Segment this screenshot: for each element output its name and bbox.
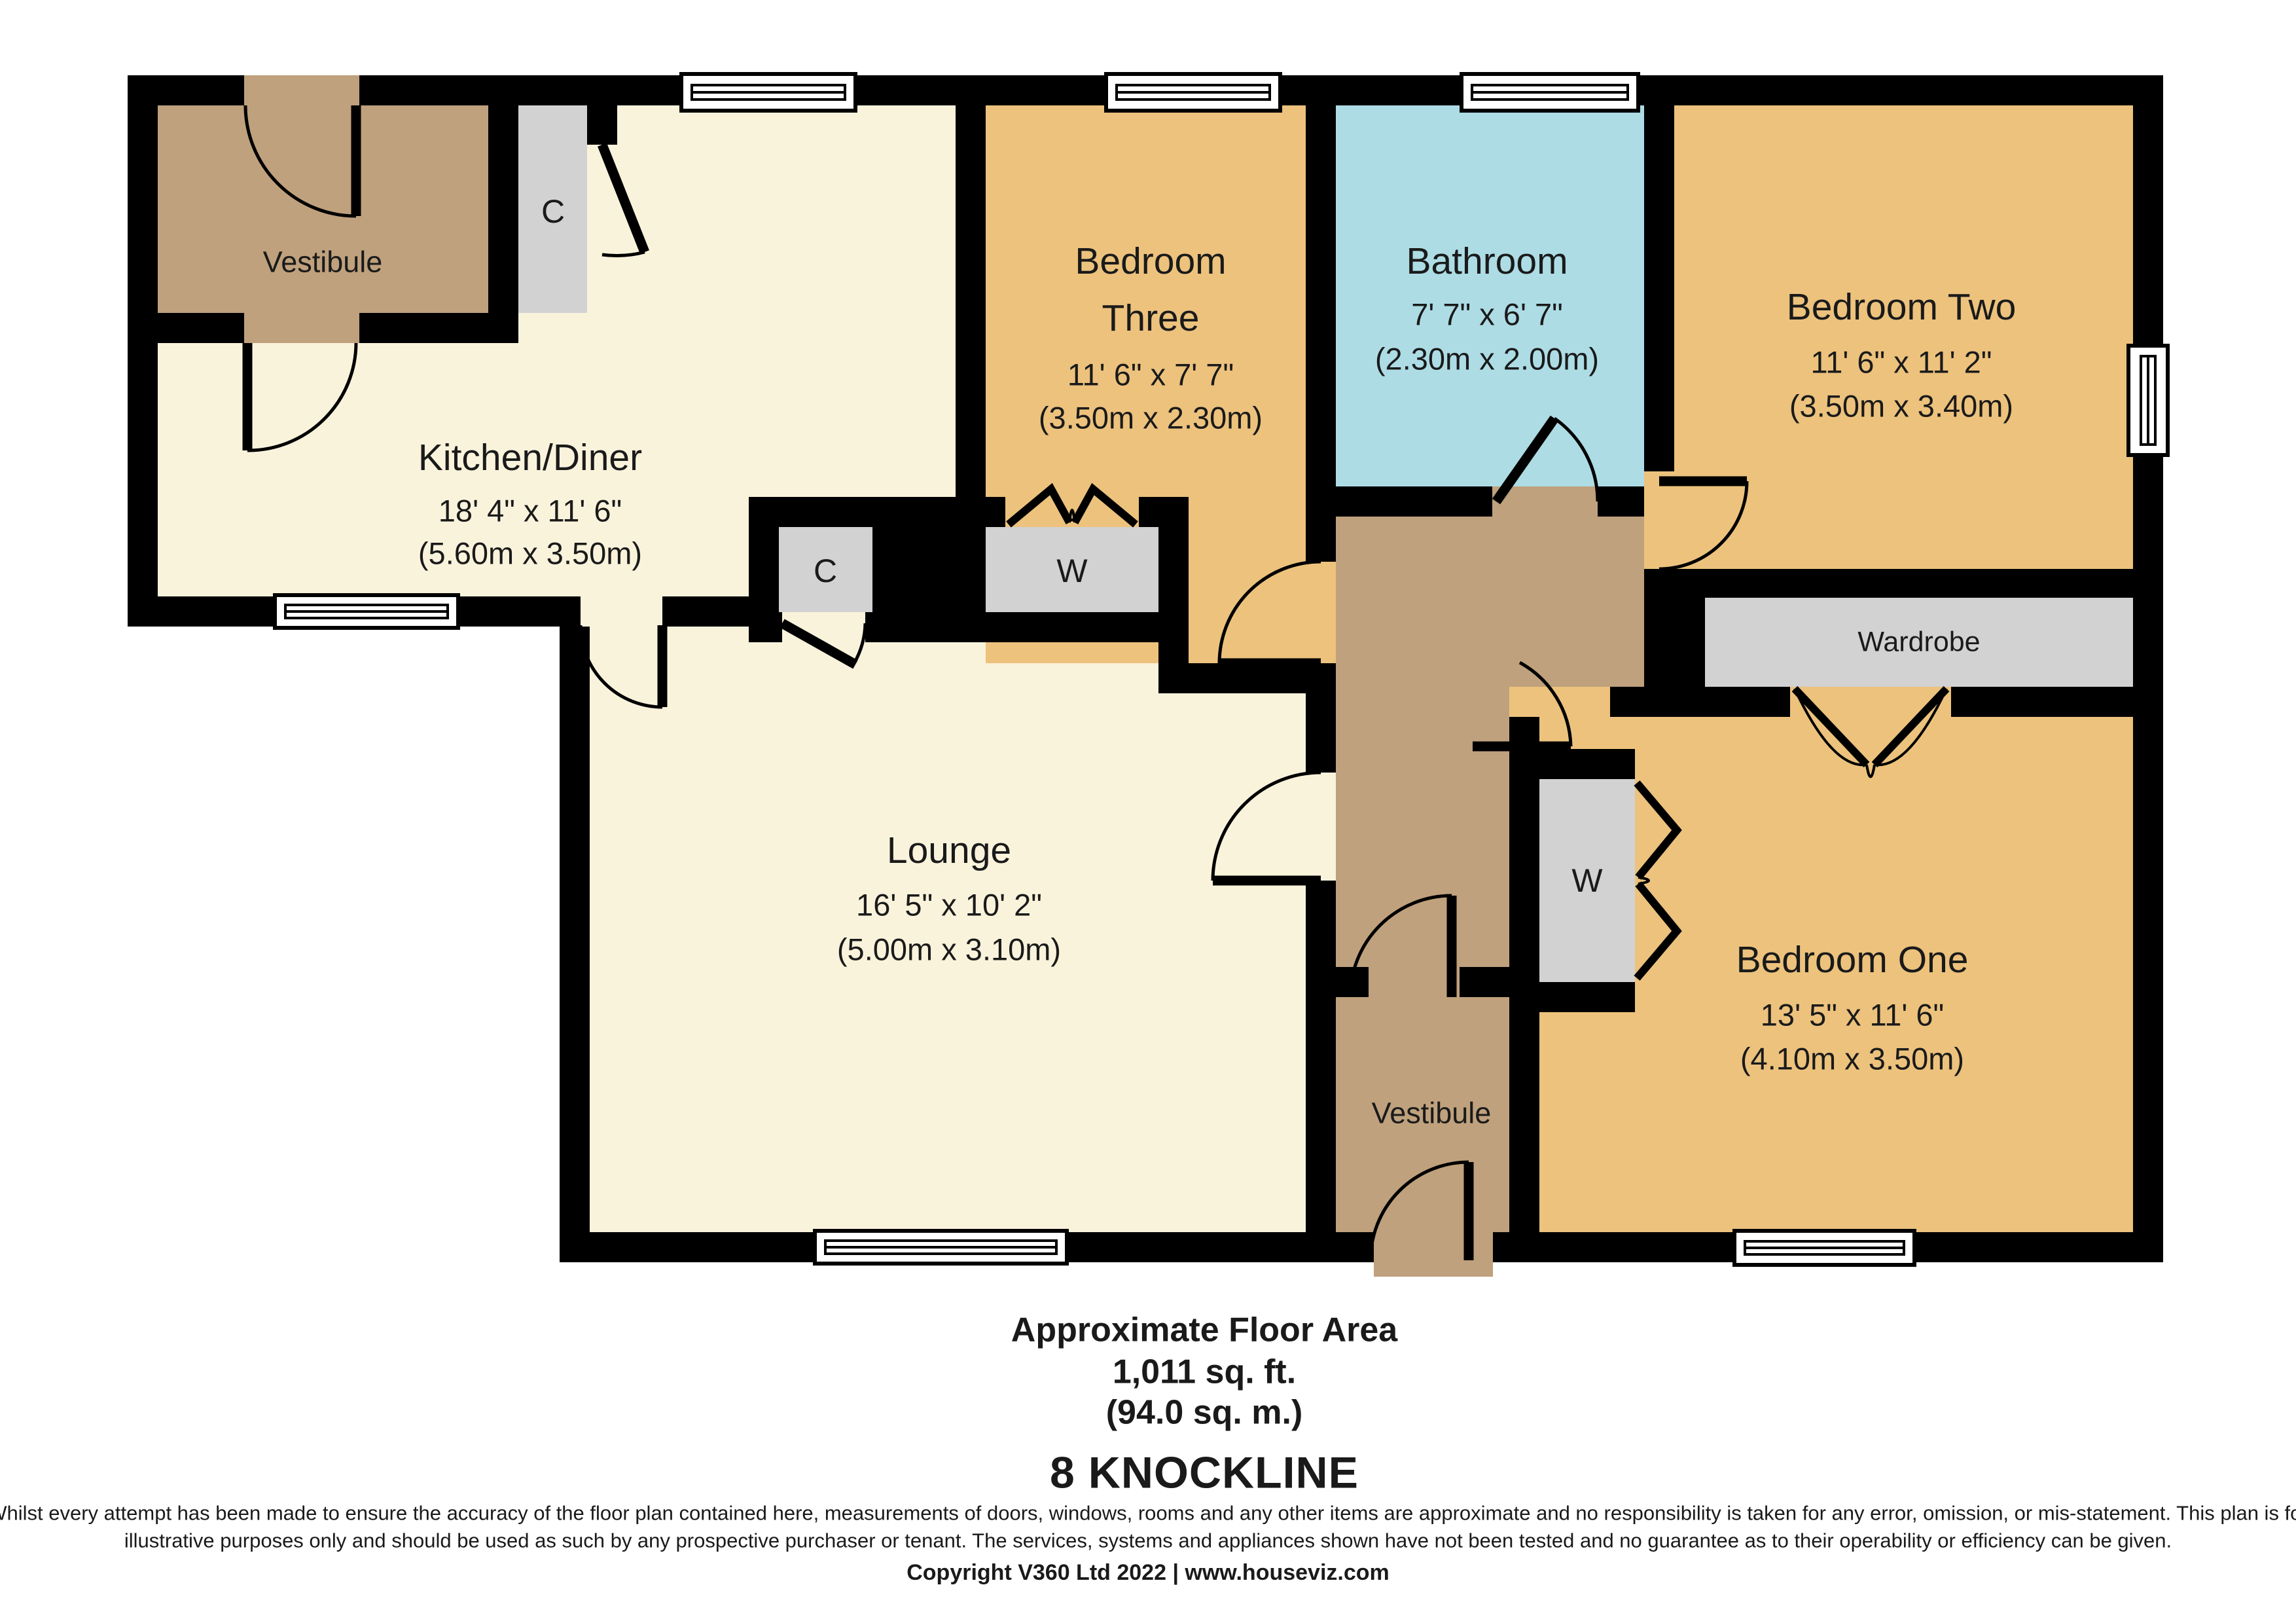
wall-closet-w2-bottom bbox=[1539, 982, 1635, 1012]
wall-corridor-left-b bbox=[1306, 881, 1336, 1232]
wall-corridor-left-a bbox=[1306, 693, 1336, 773]
label-lounge-dim-imperial: 16' 5" x 10' 2" bbox=[856, 888, 1042, 921]
label-closet-w2: W bbox=[1571, 864, 1602, 898]
wall-kitchen-bottom-stub bbox=[662, 596, 749, 627]
doorway-bedroom-three bbox=[1306, 562, 1336, 663]
window-bedroom-two-right-icon bbox=[2128, 346, 2168, 455]
doorway-entrance-top bbox=[244, 75, 359, 105]
hallway-floor bbox=[1336, 517, 1644, 687]
window-lounge-bottom-icon bbox=[815, 1231, 1067, 1264]
wall-left bbox=[128, 75, 158, 627]
floor-area-sqm: (94.0 sq. m.) bbox=[1106, 1395, 1303, 1431]
wall-closet-top-stub bbox=[587, 105, 617, 145]
label-bedroom-two-name: Bedroom Two bbox=[1787, 288, 2017, 327]
label-lounge-name: Lounge bbox=[887, 831, 1011, 871]
label-bedroom-two-dim-metric: (3.50m x 3.40m) bbox=[1789, 390, 2013, 422]
window-bedroom-one-bottom-icon bbox=[1734, 1231, 1914, 1265]
doorway-lounge-hall bbox=[1306, 773, 1336, 881]
disclaimer-line-2: illustrative purposes only and should be… bbox=[124, 1531, 2172, 1552]
label-vestibule-top: Vestibule bbox=[263, 246, 383, 277]
label-kitchen-name: Kitchen/Diner bbox=[418, 439, 642, 478]
label-bathroom-dim-metric: (2.30m x 2.00m) bbox=[1375, 342, 1599, 374]
doorway-entrance-bottom bbox=[1374, 1232, 1493, 1277]
label-closet-w1: W bbox=[1056, 554, 1087, 589]
floor-area-label: Approximate Floor Area bbox=[1011, 1313, 1397, 1349]
wall-wardrobe-bottom-left bbox=[1610, 687, 1790, 717]
wall-wardrobe-bottom-right bbox=[1951, 687, 2133, 717]
label-bathroom-dim-imperial: 7' 7" x 6' 7" bbox=[1411, 298, 1563, 330]
label-bathroom-name: Bathroom bbox=[1406, 242, 1568, 282]
label-bedroom-one-name: Bedroom One bbox=[1736, 941, 1969, 980]
wall-bedroom-three-right-a bbox=[1306, 75, 1336, 496]
room-lounge-floor bbox=[590, 627, 1306, 1232]
wall-vestibule-stub-right bbox=[1460, 967, 1509, 997]
wall-closet-w2-left bbox=[1509, 749, 1539, 1012]
label-kitchen-dim-metric: (5.60m x 3.50m) bbox=[418, 537, 642, 569]
label-bedroom-one-dim-imperial: 13' 5" x 11' 6" bbox=[1761, 998, 1944, 1030]
wall-kitchen-right bbox=[956, 75, 986, 627]
doorway-kitchen-lounge bbox=[581, 596, 662, 627]
room-bedroom-two-floor bbox=[1674, 105, 2133, 569]
corridor-vestibule-floor bbox=[1336, 687, 1509, 1232]
floor-area-sqft: 1,011 sq. ft. bbox=[1113, 1355, 1296, 1391]
doorway-vestibule-kitchen bbox=[244, 313, 359, 343]
disclaimer-line-1: Whilst every attempt has been made to en… bbox=[0, 1503, 2296, 1525]
page-title: 8 KNOCKLINE bbox=[1050, 1450, 1359, 1496]
wall-closet-row-chunk bbox=[872, 527, 956, 627]
label-bedroom-three-name2: Three bbox=[1102, 299, 1200, 338]
window-bedroom-three-top-icon bbox=[1106, 74, 1280, 111]
floorplan-page: Vestibule C Kitchen/Diner 18' 4" x 11' 6… bbox=[0, 0, 2296, 1623]
wall-bedroom-two-left bbox=[1644, 75, 1674, 471]
window-bathroom-top-icon bbox=[1462, 74, 1638, 111]
wall-closet-w2-top bbox=[1539, 749, 1635, 779]
label-kitchen-dim-imperial: 18' 4" x 11' 6" bbox=[439, 494, 622, 526]
label-closet-c1: C bbox=[541, 194, 565, 229]
wall-vestibule-top-right bbox=[488, 105, 518, 343]
label-bedroom-three-dim-metric: (3.50m x 2.30m) bbox=[1039, 401, 1263, 433]
window-kitchen-bottom-icon bbox=[275, 595, 458, 628]
wall-right bbox=[2133, 75, 2163, 1262]
label-wardrobe: Wardrobe bbox=[1857, 627, 1980, 657]
label-closet-c2: C bbox=[814, 554, 837, 589]
copyright-line: Copyright V360 Ltd 2022 | www.houseviz.c… bbox=[906, 1561, 1390, 1585]
label-bedroom-one-dim-metric: (4.10m x 3.50m) bbox=[1740, 1042, 1964, 1074]
wall-bedroom-two-bottom bbox=[1644, 569, 2163, 598]
label-vestibule-bottom: Vestibule bbox=[1372, 1097, 1492, 1128]
label-bedroom-two-dim-imperial: 11' 6" x 11' 2" bbox=[1811, 346, 1992, 378]
room-bathroom-floor bbox=[1336, 105, 1644, 486]
window-kitchen-top-icon bbox=[681, 74, 855, 111]
wall-lounge-left bbox=[560, 596, 590, 1262]
wall-bottom-stub bbox=[1336, 1232, 1374, 1262]
label-bedroom-three-dim-imperial: 11' 6" x 7' 7" bbox=[1067, 358, 1234, 390]
wall-corridor-right-b bbox=[1509, 1012, 1539, 1232]
label-bedroom-three-name1: Bedroom bbox=[1075, 242, 1226, 282]
label-lounge-dim-metric: (5.00m x 3.10m) bbox=[837, 933, 1061, 965]
vestibule-top-floor bbox=[158, 105, 488, 313]
